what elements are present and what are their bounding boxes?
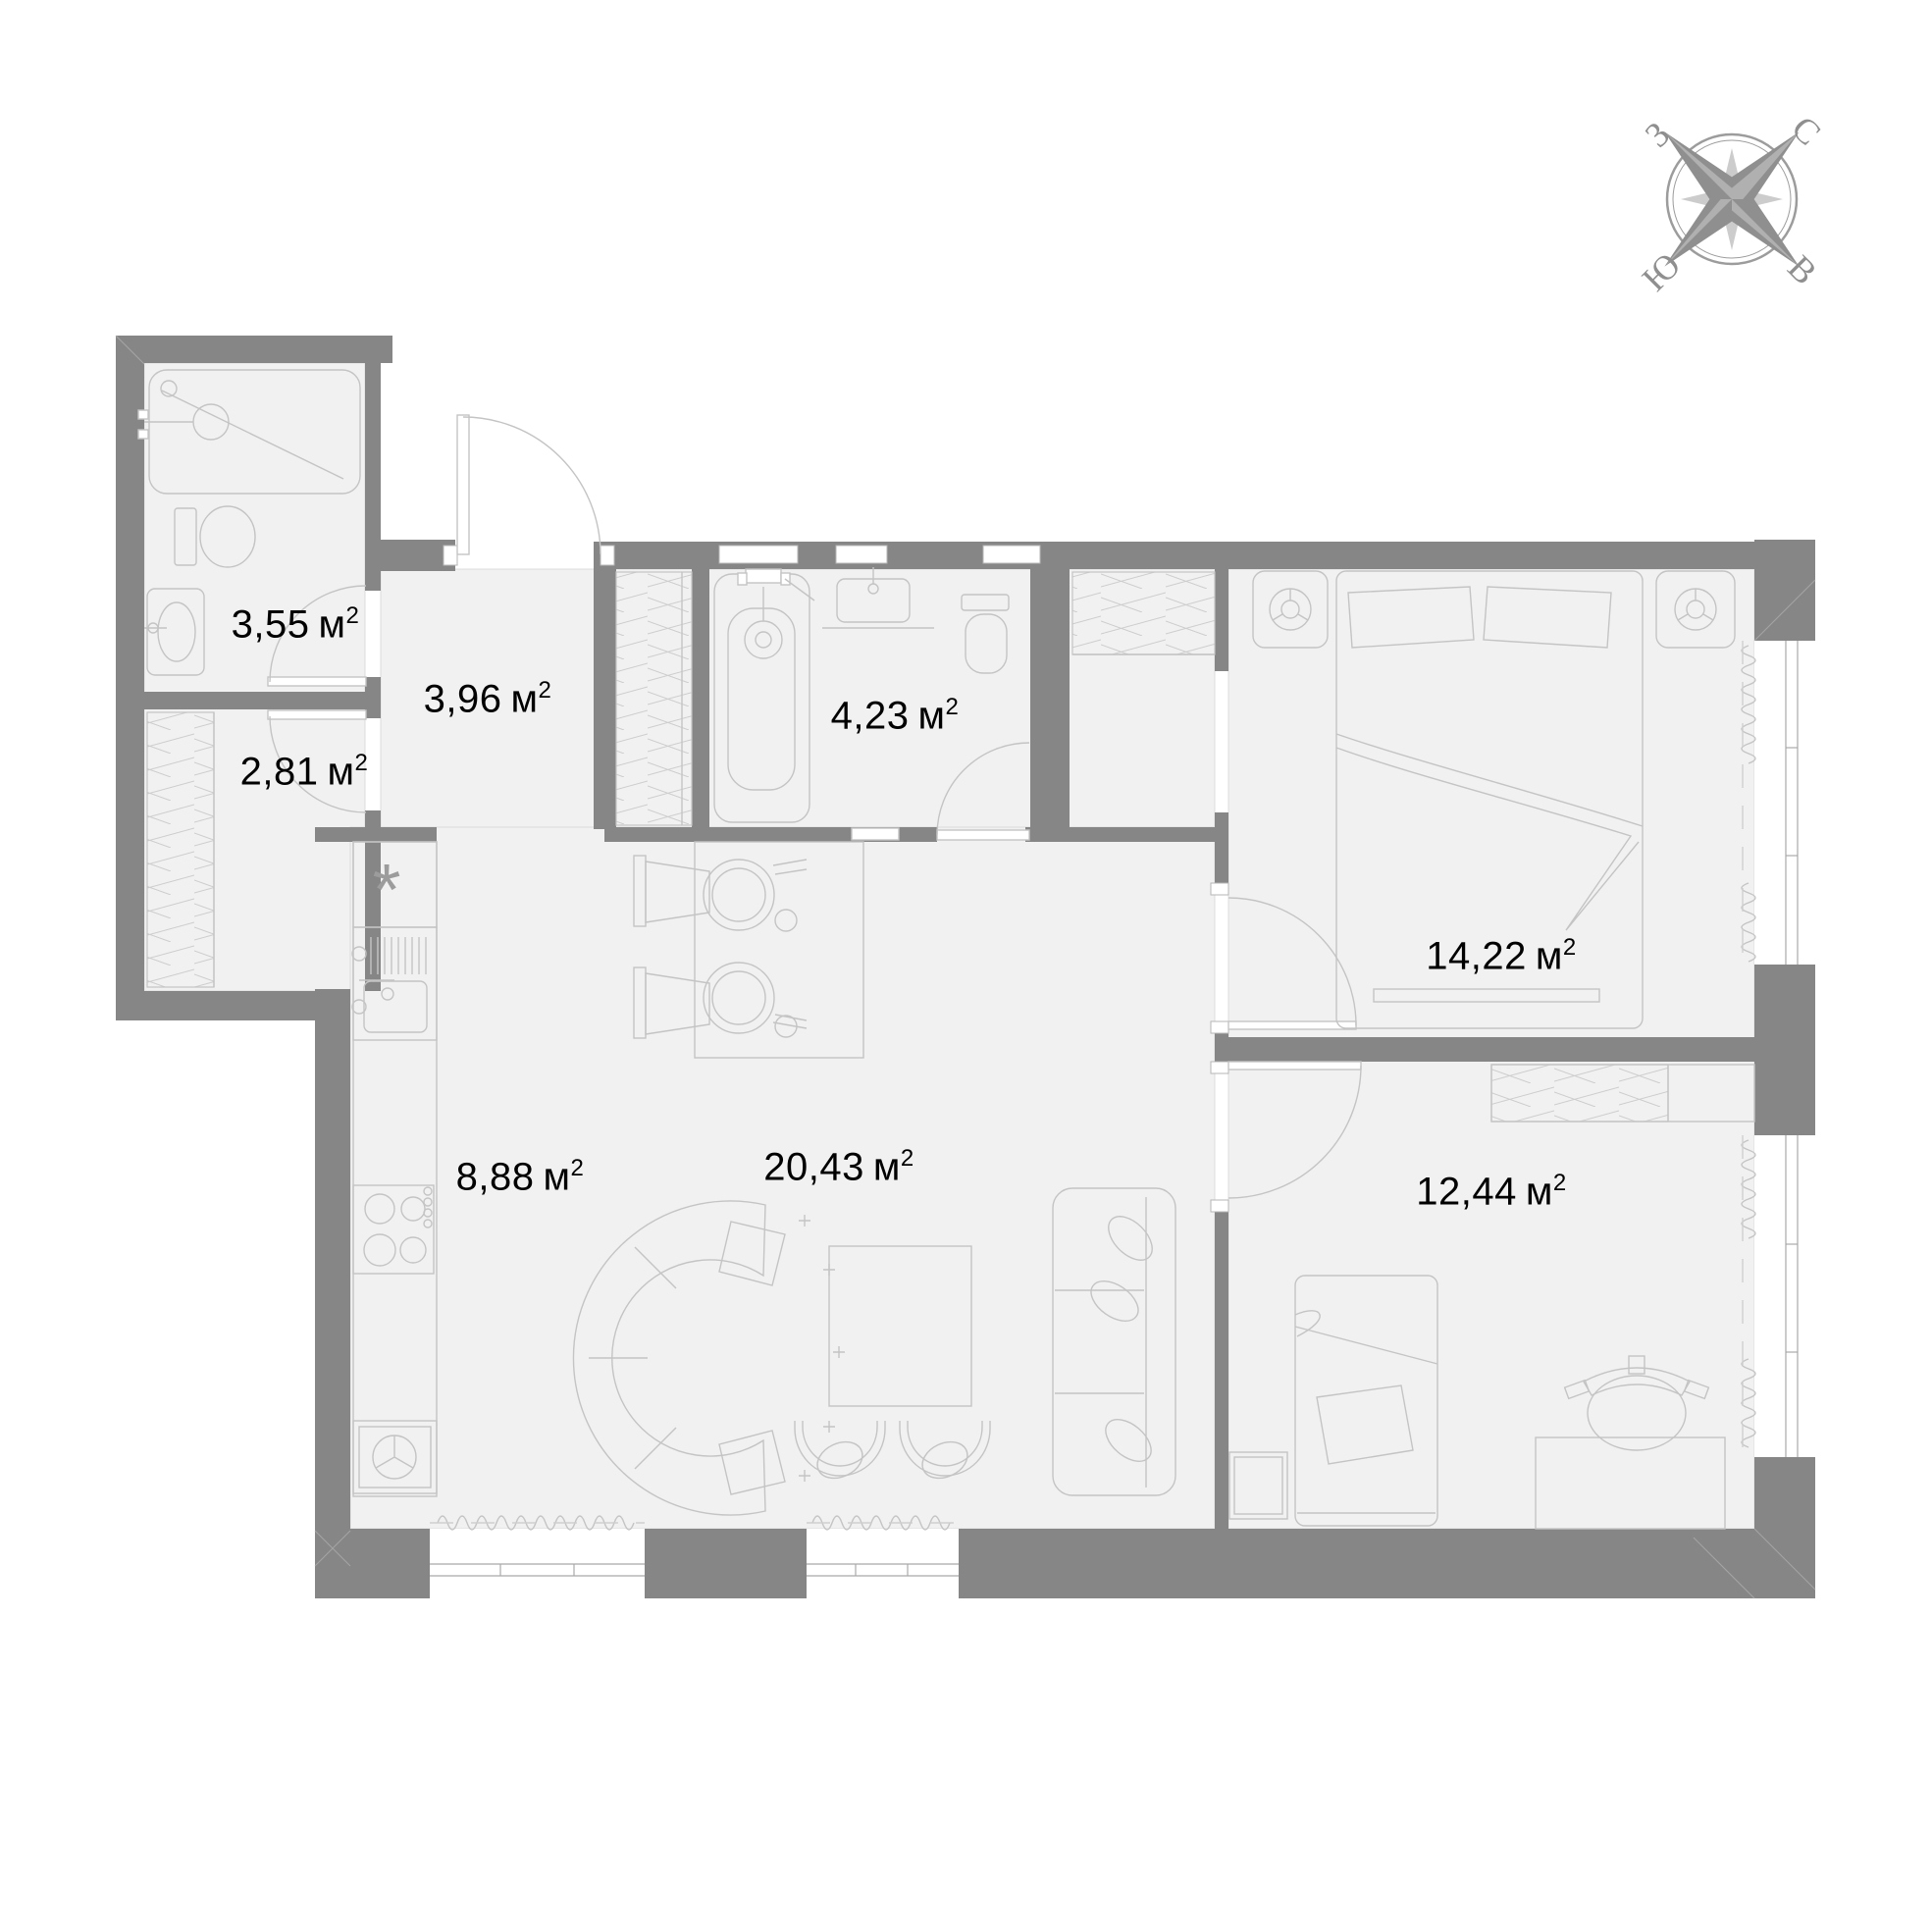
room-area-value: 4,23 xyxy=(831,695,910,738)
room-label-hallway: 3,96м2 xyxy=(424,677,552,721)
room-area-value: 14,22 xyxy=(1426,935,1527,978)
wall-segment xyxy=(594,542,616,829)
window xyxy=(1754,641,1815,965)
room-area-unit: м2 xyxy=(544,1156,585,1199)
wall-segment xyxy=(1215,812,1228,895)
wall-segment xyxy=(959,1529,1215,1598)
kitchen-marker: * xyxy=(373,849,401,930)
wall-segment xyxy=(315,827,437,842)
shaft-notch xyxy=(719,546,798,563)
wall-segment xyxy=(1754,1457,1815,1598)
room-area-unit: м2 xyxy=(319,603,360,647)
storage-shelving xyxy=(147,712,214,987)
room-area-value: 2,81 xyxy=(240,751,319,794)
entry-door xyxy=(444,415,614,565)
window xyxy=(1754,1135,1815,1457)
wall-segment xyxy=(144,692,381,709)
wall-segment xyxy=(116,336,392,363)
room-area-unit: м2 xyxy=(873,1146,914,1189)
compass-rose: З С Ю В xyxy=(1597,65,1866,334)
wall-segment xyxy=(645,1529,807,1598)
room-label-kitchen: 8,88м2 xyxy=(456,1155,585,1199)
room-area-value: 3,96 xyxy=(424,678,502,721)
wall-segment xyxy=(1215,569,1228,671)
wall-segment xyxy=(315,989,350,1598)
room-label-bathroom: 4,23м2 xyxy=(831,694,960,738)
room-area-value: 3,55 xyxy=(232,603,310,647)
room-area-value: 12,44 xyxy=(1416,1171,1517,1214)
bath-mat xyxy=(852,828,899,840)
room-label-bedroom-second: 12,44м2 xyxy=(1416,1170,1566,1214)
wall-segment xyxy=(692,569,709,829)
room-area-value: 20,43 xyxy=(763,1146,864,1189)
room-area-unit: м2 xyxy=(511,678,552,721)
wall-segment xyxy=(1754,965,1815,1135)
bedroom-second-wardrobe xyxy=(1491,1065,1754,1122)
compass-label-west: З xyxy=(1637,114,1677,154)
room-area-unit: м2 xyxy=(1526,1171,1567,1214)
room-label-bedroom-main: 14,22м2 xyxy=(1426,934,1576,978)
hallway-wardrobe xyxy=(616,572,692,825)
room-area-unit: м2 xyxy=(328,751,369,794)
compass-star-shading xyxy=(1597,65,1866,334)
shaft-notch xyxy=(836,546,887,563)
shaft-notch xyxy=(983,546,1040,563)
room-label-living-room: 20,43м2 xyxy=(763,1145,914,1189)
wall-segment xyxy=(1215,1037,1754,1062)
corridor-wardrobe xyxy=(1072,572,1215,654)
room-label-shower-room: 3,55м2 xyxy=(232,602,360,647)
floor-plan: * xyxy=(0,0,1932,1932)
wall-segment xyxy=(1215,1212,1228,1529)
wall-segment xyxy=(365,540,455,571)
wall-segment xyxy=(1025,827,1228,842)
room-area-unit: м2 xyxy=(1536,935,1577,978)
room-label-storage: 2,81м2 xyxy=(240,750,369,794)
wall-segment xyxy=(1754,540,1815,643)
compass-label-north: С xyxy=(1784,108,1828,152)
wall-segment xyxy=(315,1529,430,1598)
floor-plan-drawing: * xyxy=(0,0,1932,1932)
room-area-value: 8,88 xyxy=(456,1156,535,1199)
room-area-unit: м2 xyxy=(918,695,960,738)
wall-segment xyxy=(1215,1529,1815,1598)
wall-segment xyxy=(1030,542,1070,829)
